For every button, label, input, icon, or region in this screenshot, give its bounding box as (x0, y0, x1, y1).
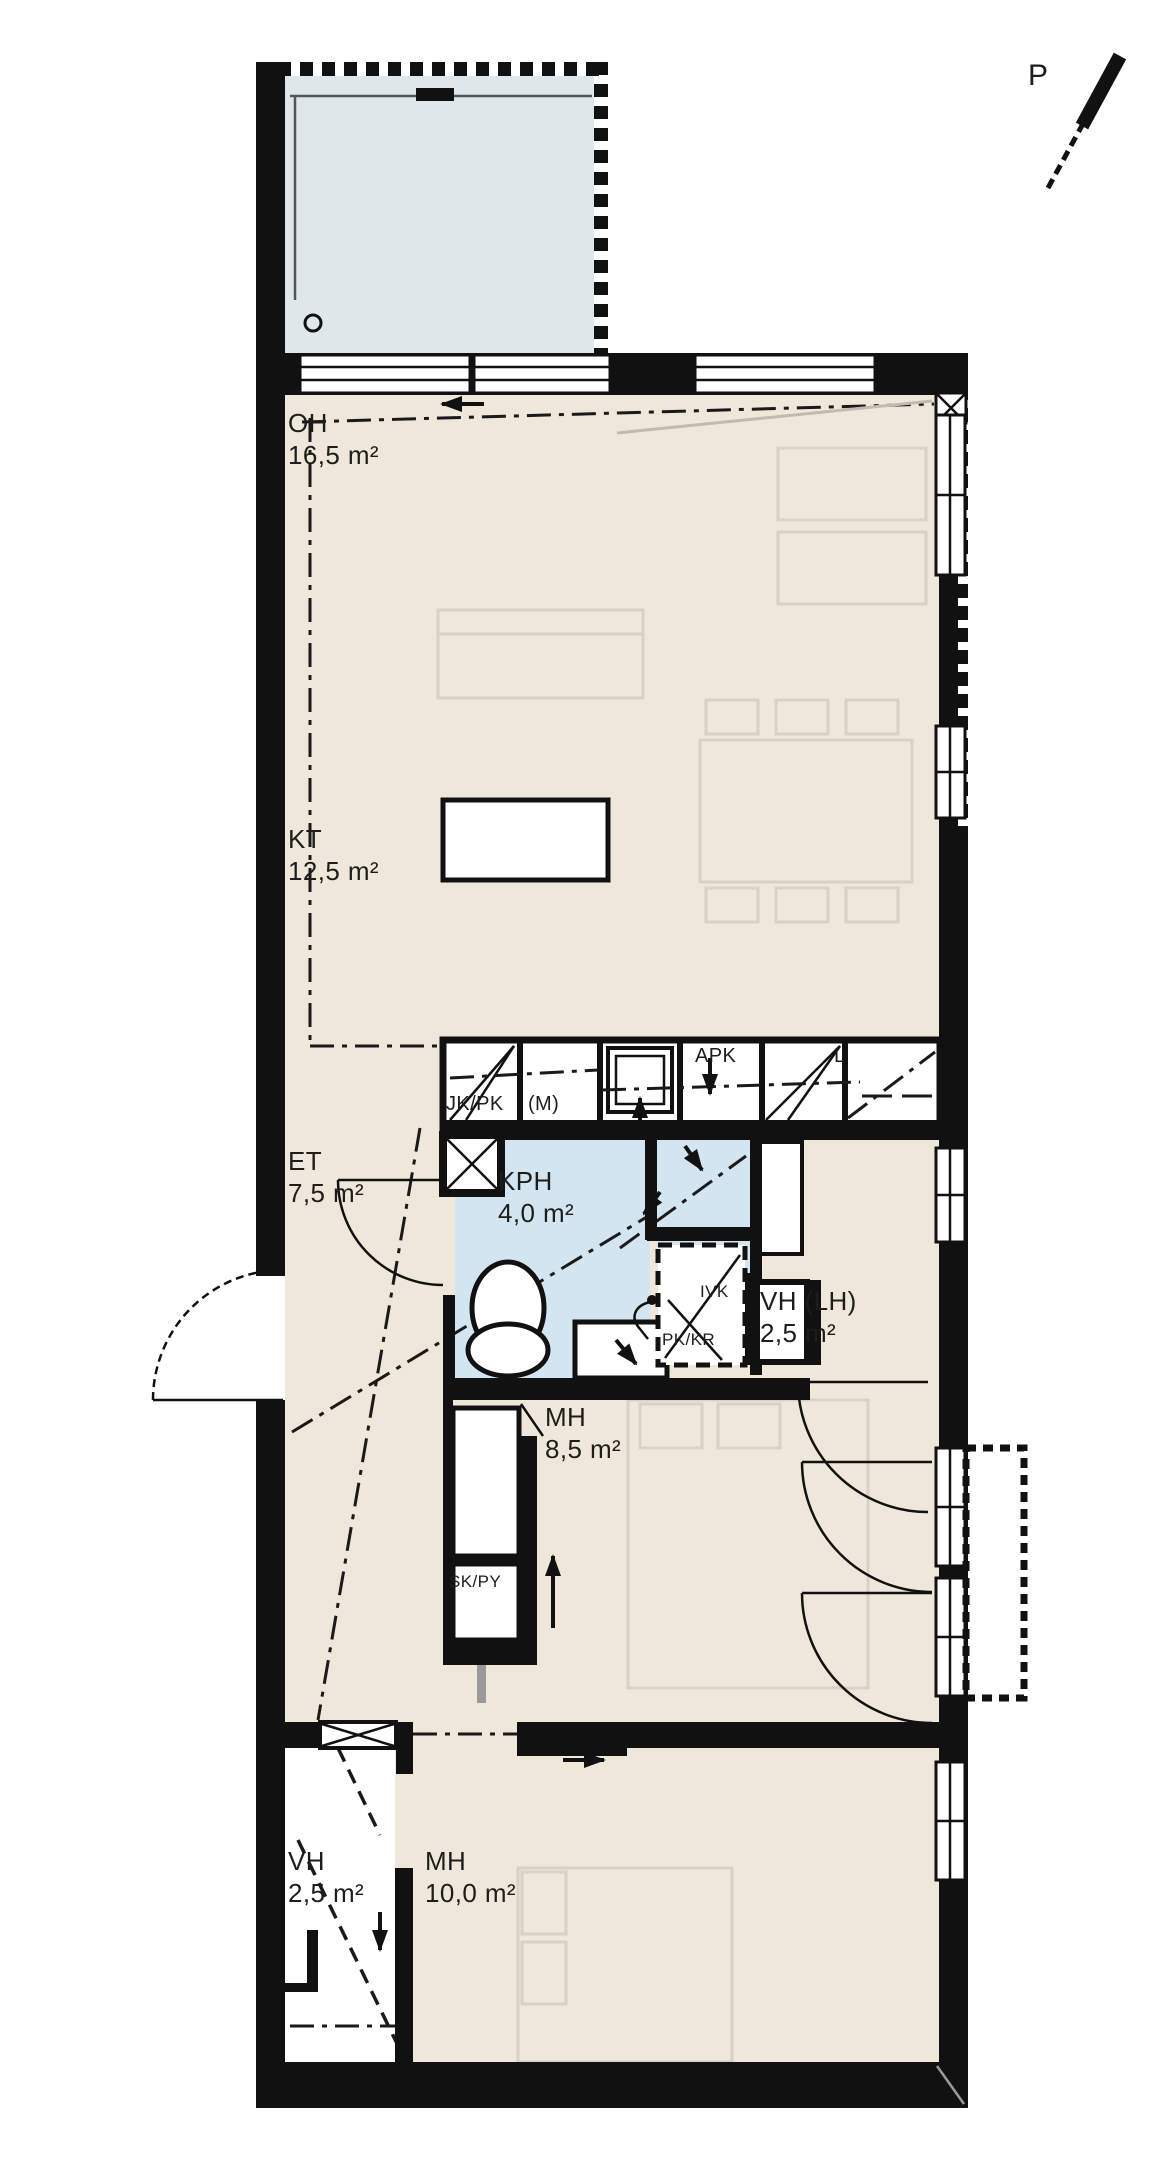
label-fridge: JK/PK (446, 1092, 504, 1116)
balcony-drain (305, 315, 321, 331)
label-pk-kr: PK/KR (662, 1330, 715, 1350)
floor-plan-drawing (0, 0, 1168, 2159)
floor-plan: OH 16,5 m² KT 12,5 m² ET 7,5 m² KPH 4,0 … (0, 0, 1168, 2159)
room-area: 2,5 m² (760, 1318, 857, 1350)
kitchen-counter (443, 1040, 940, 1132)
room-name: VH (LH) (760, 1286, 857, 1318)
label-sk-py: SK/PY (449, 1572, 501, 1592)
room-label-mh-large: MH 10,0 m² (425, 1846, 516, 1909)
kitchen-island (443, 800, 608, 880)
room-area: 12,5 m² (288, 856, 379, 888)
tall-cabinet (760, 1142, 802, 1254)
room-label-kph: KPH 4,0 m² (498, 1166, 574, 1229)
label-dishwasher: APK (695, 1044, 736, 1068)
room-area: 16,5 m² (288, 440, 379, 472)
room-name: KT (288, 824, 379, 856)
room-area: 4,0 m² (498, 1198, 574, 1230)
room-label-et: ET 7,5 m² (288, 1146, 364, 1209)
label-stove: L (834, 1044, 846, 1068)
sink (575, 1322, 667, 1378)
label-microwave: (M) (528, 1092, 559, 1116)
room-label-oh: OH 16,5 m² (288, 408, 379, 471)
room-label-kt: KT 12,5 m² (288, 824, 379, 887)
room-area: 10,0 m² (425, 1878, 516, 1910)
room-area: 7,5 m² (288, 1178, 364, 1210)
north-arrow (1048, 56, 1120, 188)
label-ivk: IVK (700, 1282, 729, 1302)
entrance-door (153, 1268, 285, 1408)
room-area: 2,5 m² (288, 1878, 364, 1910)
room-name: MH (545, 1402, 621, 1434)
room-label-vh-lh: VH (LH) 2,5 m² (760, 1286, 857, 1349)
sk-py-cabinet (453, 1408, 519, 1556)
room-name: KPH (498, 1166, 574, 1198)
north-label: P (1028, 58, 1048, 95)
room-name: VH (288, 1846, 364, 1878)
french-balcony-railing (966, 1448, 1024, 1698)
room-label-vh-entry: VH 2,5 m² (288, 1846, 364, 1909)
room-name: ET (288, 1146, 364, 1178)
room-area: 8,5 m² (545, 1434, 621, 1466)
room-name: OH (288, 408, 379, 440)
room-name: MH (425, 1846, 516, 1878)
room-label-mh-small: MH 8,5 m² (545, 1402, 621, 1465)
